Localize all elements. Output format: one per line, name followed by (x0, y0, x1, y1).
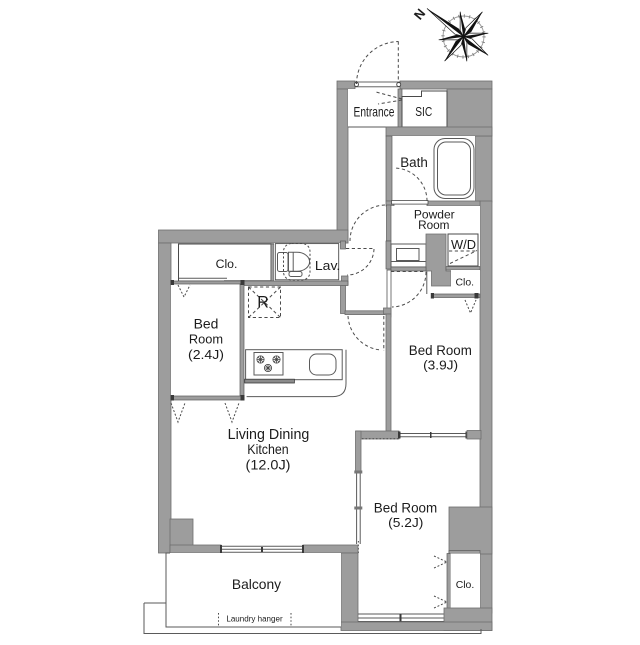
svg-text:Bath: Bath (400, 155, 428, 170)
svg-text:Lav.: Lav. (315, 258, 340, 273)
svg-text:R: R (257, 293, 269, 312)
svg-text:Balcony: Balcony (232, 577, 281, 592)
svg-text:Clo.: Clo. (456, 579, 475, 591)
svg-text:Bed: Bed (194, 316, 219, 331)
svg-text:Clo.: Clo. (216, 259, 238, 271)
svg-text:(5.2J): (5.2J) (388, 515, 423, 530)
svg-text:Room: Room (418, 218, 449, 232)
svg-text:SIC: SIC (415, 105, 432, 119)
svg-text:Bed Room: Bed Room (374, 500, 437, 515)
svg-text:(3.9J): (3.9J) (423, 357, 458, 372)
svg-text:Room: Room (189, 332, 223, 347)
svg-text:Bed Room: Bed Room (409, 343, 472, 358)
svg-text:Clo.: Clo. (456, 277, 475, 289)
svg-text:(2.4J): (2.4J) (188, 347, 224, 362)
svg-text:Kitchen: Kitchen (247, 441, 288, 457)
svg-text:(12.0J): (12.0J) (246, 456, 291, 472)
svg-text:Entrance: Entrance (354, 103, 395, 119)
svg-text:W/D: W/D (451, 238, 476, 252)
svg-text:Laundry hanger: Laundry hanger (226, 614, 283, 623)
